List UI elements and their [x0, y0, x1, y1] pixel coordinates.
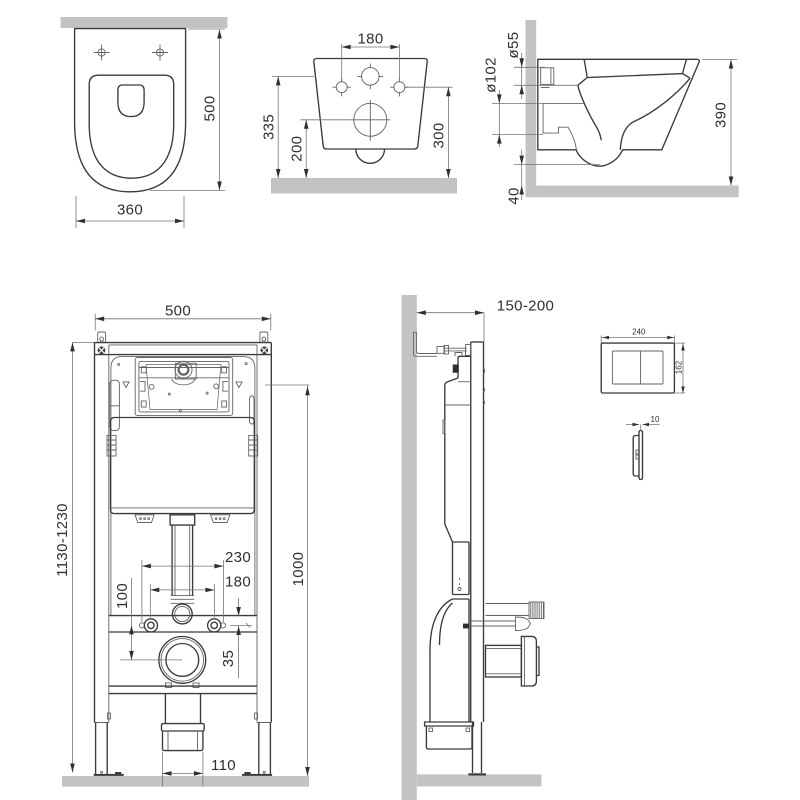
svg-text:162: 162: [675, 360, 684, 374]
svg-text:1000: 1000: [290, 552, 307, 587]
svg-text:335: 335: [260, 114, 277, 140]
svg-text:390: 390: [712, 102, 729, 128]
svg-text:300: 300: [430, 122, 447, 148]
svg-text:35: 35: [220, 650, 237, 667]
svg-text:10: 10: [651, 415, 660, 424]
svg-text:500: 500: [165, 303, 191, 320]
svg-text:360: 360: [117, 202, 143, 219]
svg-text:200: 200: [288, 136, 305, 162]
svg-text:180: 180: [357, 31, 383, 48]
svg-text:150-200: 150-200: [497, 298, 555, 315]
svg-text:110: 110: [211, 757, 236, 774]
svg-text:240: 240: [632, 328, 646, 337]
svg-text:ø55: ø55: [505, 32, 522, 59]
svg-text:ø102: ø102: [482, 57, 499, 93]
svg-text:230: 230: [225, 549, 251, 566]
svg-text:1130-1230: 1130-1230: [54, 503, 71, 577]
svg-text:180: 180: [225, 574, 251, 591]
svg-text:500: 500: [201, 95, 218, 121]
svg-text:100: 100: [114, 583, 131, 609]
svg-text:40: 40: [505, 187, 522, 204]
